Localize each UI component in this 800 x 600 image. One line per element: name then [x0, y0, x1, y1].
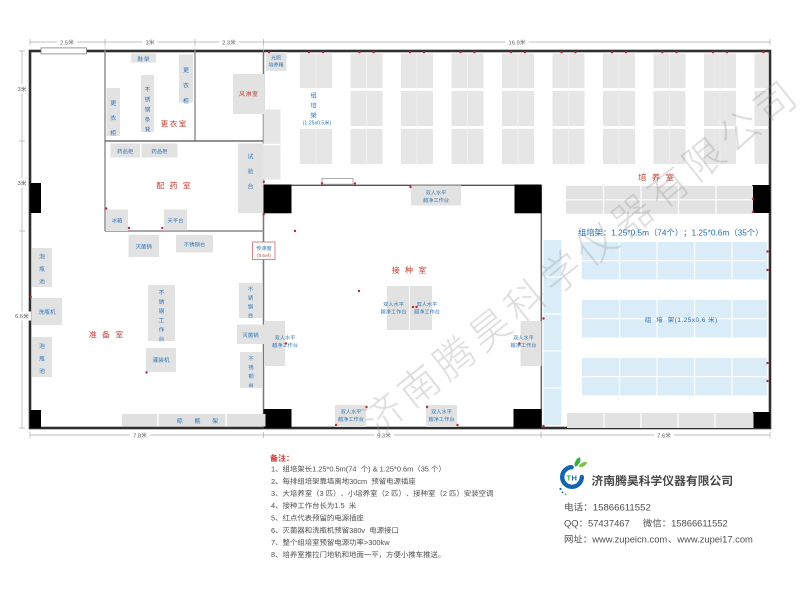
svg-text:2: 2: [385, 489, 389, 498]
svg-text:1.5: 1.5: [334, 501, 344, 510]
svg-text:QQ: QQ: [564, 518, 579, 529]
svg-text:(0.6: (0.6: [257, 253, 265, 258]
svg-text:(1.25x0.6: (1.25x0.6: [675, 317, 706, 324]
svg-text:H: H: [572, 474, 577, 483]
svg-text:1.25*0.5m(74: 1.25*0.5m(74: [312, 465, 356, 474]
svg-text:6: 6: [271, 526, 275, 535]
svg-text:15866611552: 15866611552: [593, 503, 651, 514]
svg-text:7.6: 7.6: [657, 433, 665, 439]
svg-text:30cm: 30cm: [349, 477, 367, 486]
svg-text:8: 8: [271, 550, 275, 559]
svg-text:2: 2: [271, 477, 275, 486]
svg-text:3: 3: [320, 489, 324, 498]
svg-text:15866611552: 15866611552: [671, 518, 728, 529]
svg-text:7: 7: [271, 538, 275, 547]
svg-text:74: 74: [657, 228, 667, 238]
svg-text:1.25*0.6m: 1.25*0.6m: [692, 228, 730, 238]
svg-text:3: 3: [271, 489, 275, 498]
svg-text:): ): [715, 317, 718, 324]
svg-text:): ): [330, 121, 332, 127]
svg-text:7.8: 7.8: [133, 433, 141, 439]
svg-text:35: 35: [738, 228, 748, 238]
svg-text:5: 5: [271, 514, 275, 523]
svg-text:6.6: 6.6: [15, 314, 23, 320]
svg-text:2.5: 2.5: [60, 40, 68, 46]
svg-text:57437467: 57437467: [588, 518, 630, 529]
svg-text:35: 35: [421, 465, 429, 474]
svg-text:4: 4: [271, 501, 275, 510]
svg-text:>300kw: >300kw: [364, 538, 390, 547]
svg-text:16.9: 16.9: [509, 40, 520, 46]
svg-text:3: 3: [18, 181, 21, 187]
svg-text:2.3: 2.3: [222, 40, 230, 46]
svg-text:www.zupei17.com: www.zupei17.com: [676, 534, 753, 545]
svg-text:380v: 380v: [349, 526, 365, 535]
svg-text:1: 1: [271, 465, 275, 474]
svg-text:www.zupeicn.com: www.zupeicn.com: [591, 534, 667, 545]
svg-text:2: 2: [443, 489, 447, 498]
svg-text:) & 1.25*0.6m: ) & 1.25*0.6m: [368, 465, 413, 474]
svg-text:3: 3: [146, 40, 149, 46]
svg-text:3: 3: [18, 87, 21, 93]
svg-text:(1.25x0.5: (1.25x0.5: [303, 121, 325, 127]
